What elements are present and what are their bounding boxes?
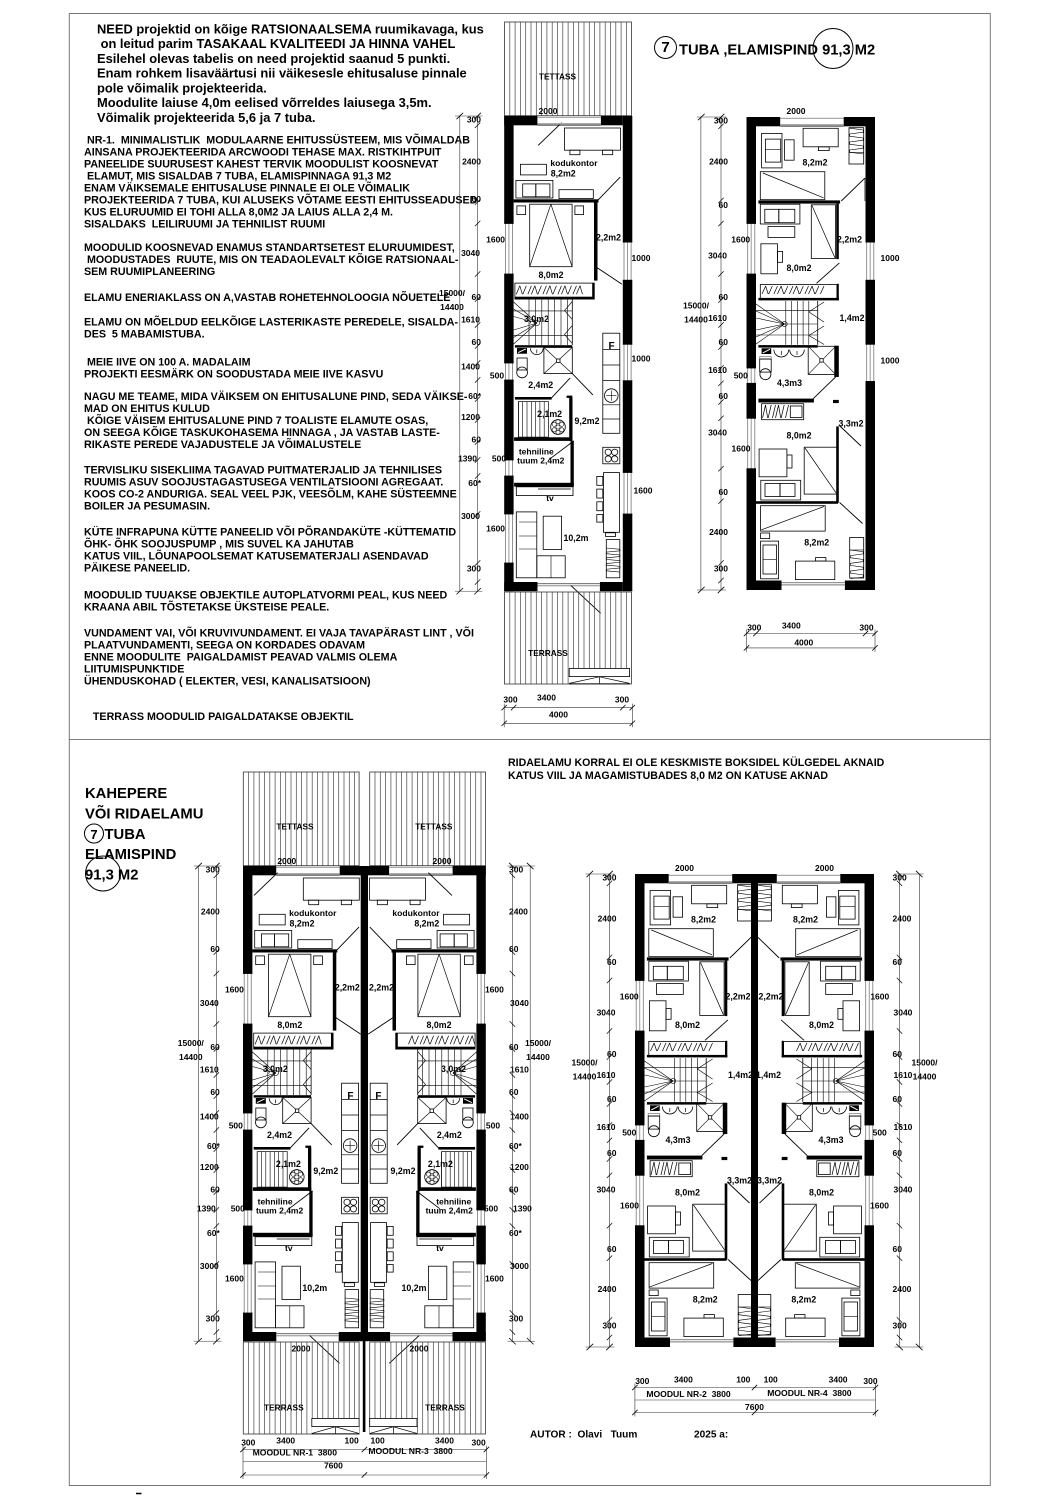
svg-text:KUS ELURUUMID EI TOHI ALLA 8,0: KUS ELURUUMID EI TOHI ALLA 8,0M2 JA LAIU… bbox=[84, 206, 393, 218]
svg-text:60*: 60* bbox=[468, 478, 481, 488]
svg-text:DES 5 MABAMISTUBA.: DES 5 MABAMISTUBA. bbox=[84, 328, 205, 340]
svg-text:1,4m2: 1,4m2 bbox=[728, 1070, 753, 1080]
svg-text:500: 500 bbox=[492, 454, 506, 464]
svg-text:AUTOR : Olavi Tuum: AUTOR : Olavi Tuum bbox=[530, 1429, 637, 1440]
svg-text:KOOS CO-2 ANDURIGA. SEAL VEEL: KOOS CO-2 ANDURIGA. SEAL VEEL PJK, VEESÕ… bbox=[84, 487, 457, 500]
svg-text:2400: 2400 bbox=[709, 527, 728, 537]
svg-text:300: 300 bbox=[859, 622, 873, 632]
svg-text:3,0m2: 3,0m2 bbox=[263, 1064, 288, 1074]
svg-text:4,3m3: 4,3m3 bbox=[819, 1135, 844, 1145]
svg-text:8,2m2: 8,2m2 bbox=[290, 918, 315, 928]
svg-text:2,2m2: 2,2m2 bbox=[335, 983, 360, 993]
svg-text:1600: 1600 bbox=[225, 1273, 244, 1283]
svg-text:2400: 2400 bbox=[598, 913, 617, 923]
svg-text:2000: 2000 bbox=[675, 863, 694, 873]
svg-text:3040: 3040 bbox=[894, 1185, 913, 1195]
svg-text:8,2m2: 8,2m2 bbox=[793, 914, 818, 924]
svg-text:2000: 2000 bbox=[787, 106, 806, 116]
svg-text:MOODUSTADES RUUTE, MIS ON TEA: MOODUSTADES RUUTE, MIS ON TEADAOLEVALT K… bbox=[84, 253, 459, 266]
svg-text:PROJEKTEERIDA 7 TUBA, KUI ALUS: PROJEKTEERIDA 7 TUBA, KUI ALUSEKS VÕTAME… bbox=[84, 193, 478, 206]
svg-text:300: 300 bbox=[635, 1376, 649, 1386]
svg-text:2025 a:: 2025 a: bbox=[694, 1429, 728, 1440]
svg-text:100: 100 bbox=[371, 1435, 385, 1445]
svg-text:KAHEPERE: KAHEPERE bbox=[85, 786, 167, 802]
svg-text:LIITUMISPUNKTIDE: LIITUMISPUNKTIDE bbox=[84, 663, 184, 675]
svg-text:MOODUL NR-1 3800: MOODUL NR-1 3800 bbox=[253, 1448, 338, 1458]
svg-text:3040: 3040 bbox=[708, 428, 727, 438]
svg-text:3400: 3400 bbox=[782, 621, 801, 631]
svg-text:F: F bbox=[609, 341, 615, 352]
svg-text:2,1m2: 2,1m2 bbox=[428, 1159, 453, 1169]
svg-text:F: F bbox=[347, 1091, 353, 1102]
svg-text:300: 300 bbox=[863, 1376, 877, 1386]
svg-text:60: 60 bbox=[893, 1049, 903, 1059]
svg-text:1390: 1390 bbox=[197, 1204, 216, 1214]
svg-text:kodukontor: kodukontor bbox=[550, 158, 598, 168]
svg-text:500: 500 bbox=[490, 370, 504, 380]
svg-text:PLAATVUNDAMENTI, SEEGA ON KORD: PLAATVUNDAMENTI, SEEGA ON KORDADES ODAVA… bbox=[84, 639, 365, 651]
svg-text:MOODUL NR-2 3800: MOODUL NR-2 3800 bbox=[646, 1389, 731, 1399]
svg-text:100: 100 bbox=[736, 1375, 750, 1385]
svg-text:8,2m2: 8,2m2 bbox=[803, 157, 828, 167]
svg-text:Moodulite laiuse 4,0m eelised: Moodulite laiuse 4,0m eelised võrreldes … bbox=[97, 95, 432, 110]
svg-text:9,2m2: 9,2m2 bbox=[391, 1166, 416, 1176]
svg-text:Võimalik projekteerida 5,6 ja: Võimalik projekteerida 5,6 ja 7 tuba. bbox=[97, 110, 316, 125]
svg-text:tv: tv bbox=[546, 493, 554, 503]
svg-text:3,0m2: 3,0m2 bbox=[441, 1064, 466, 1074]
svg-text:15000/: 15000/ bbox=[178, 1038, 205, 1048]
svg-text:1600: 1600 bbox=[486, 235, 505, 245]
svg-text:1600: 1600 bbox=[225, 985, 244, 995]
svg-text:60*: 60* bbox=[509, 1141, 522, 1151]
svg-text:2000: 2000 bbox=[277, 856, 296, 866]
svg-text:2400: 2400 bbox=[201, 906, 220, 916]
svg-text:1000: 1000 bbox=[632, 354, 651, 364]
svg-text:8,0m2: 8,0m2 bbox=[675, 1188, 700, 1198]
svg-text:3,3m2: 3,3m2 bbox=[839, 418, 864, 428]
svg-text:4,3m3: 4,3m3 bbox=[777, 378, 802, 388]
svg-text:KÜTE INFRAPUNA KÜTTE PANEELID: KÜTE INFRAPUNA KÜTTE PANEELID VÕI PÕRAND… bbox=[84, 526, 456, 539]
svg-text:3040: 3040 bbox=[708, 250, 727, 260]
svg-text:KÕIGE VÄISEM EHITUSALUNE PIND: KÕIGE VÄISEM EHITUSALUNE PIND 7 TOALISTE… bbox=[84, 414, 428, 427]
svg-text:ÜHENDUSKOHAD ( ELEKTER, VESI,: ÜHENDUSKOHAD ( ELEKTER, VESI, KANALISATS… bbox=[84, 674, 371, 687]
svg-text:60: 60 bbox=[607, 1244, 617, 1254]
svg-text:TERRASS MOODULID PAIGALDATAKSE: TERRASS MOODULID PAIGALDATAKSE OBJEKTIL bbox=[84, 711, 354, 723]
svg-text:60*: 60* bbox=[207, 1228, 220, 1238]
svg-text:60: 60 bbox=[472, 194, 482, 204]
svg-text:MOODUL NR-4 3800: MOODUL NR-4 3800 bbox=[767, 1388, 852, 1398]
svg-text:2,1m2: 2,1m2 bbox=[276, 1159, 301, 1169]
svg-text:2,4m2: 2,4m2 bbox=[267, 1130, 292, 1140]
svg-text:4,3m3: 4,3m3 bbox=[666, 1135, 691, 1145]
svg-text:1600: 1600 bbox=[485, 1273, 504, 1283]
svg-text:SISALDAKS LEILIRUUMI JA TEHNI: SISALDAKS LEILIRUUMI JA TEHNILIST RUUMI bbox=[84, 218, 325, 230]
svg-text:60: 60 bbox=[607, 1049, 617, 1059]
svg-text:60: 60 bbox=[509, 944, 519, 954]
svg-text:300: 300 bbox=[503, 695, 517, 705]
svg-text:ELAMU ENERIAKLASS ON A,VASTAB: ELAMU ENERIAKLASS ON A,VASTAB ROHETEHNOL… bbox=[84, 291, 450, 304]
svg-text:3400: 3400 bbox=[435, 1435, 454, 1445]
svg-text:2,4m2: 2,4m2 bbox=[437, 1130, 462, 1140]
svg-text:8,2m2: 8,2m2 bbox=[414, 918, 439, 928]
svg-text:SEM RUUMIPLANEERING: SEM RUUMIPLANEERING bbox=[84, 266, 215, 278]
svg-text:1610: 1610 bbox=[708, 313, 727, 323]
svg-text:3400: 3400 bbox=[829, 1375, 848, 1385]
svg-text:1390: 1390 bbox=[513, 1204, 532, 1214]
svg-text:2400: 2400 bbox=[709, 156, 728, 166]
svg-text:1390: 1390 bbox=[458, 454, 477, 464]
svg-text:BOILER JA PESUMASIN.: BOILER JA PESUMASIN. bbox=[84, 500, 210, 512]
svg-text:3,3m2: 3,3m2 bbox=[727, 1175, 752, 1185]
svg-text:2400: 2400 bbox=[598, 1284, 617, 1294]
svg-text:8,0m2: 8,0m2 bbox=[675, 1020, 700, 1030]
svg-text:300: 300 bbox=[206, 1313, 220, 1323]
svg-text:1,4m2: 1,4m2 bbox=[756, 1070, 781, 1080]
svg-text:3400: 3400 bbox=[674, 1375, 693, 1385]
svg-text:500: 500 bbox=[873, 1127, 887, 1137]
svg-text:60: 60 bbox=[893, 1244, 903, 1254]
svg-text:Enam rohkem lisaväärtusi nii v: Enam rohkem lisaväärtusi nii väikesesle … bbox=[97, 66, 467, 81]
svg-text:MEIE IIVE ON 100 A. MADALAIM: MEIE IIVE ON 100 A. MADALAIM bbox=[84, 356, 251, 368]
svg-text:TUBA: TUBA bbox=[105, 827, 146, 843]
svg-text:2400: 2400 bbox=[893, 1284, 912, 1294]
svg-text:ENNE MOODULITE PAIGALDAMIST P: ENNE MOODULITE PAIGALDAMIST PEAVAD VALMI… bbox=[84, 651, 398, 663]
svg-text:1600: 1600 bbox=[486, 523, 505, 533]
svg-text:1610: 1610 bbox=[894, 1122, 913, 1132]
svg-text:TETTASS: TETTASS bbox=[415, 822, 453, 832]
svg-text:NEED projektid on kõige RATSIO: NEED projektid on kõige RATSIONAALSEMA r… bbox=[97, 22, 484, 37]
svg-text:1000: 1000 bbox=[881, 253, 900, 263]
svg-text:TUBA ,ELAMISPIND 91,3 M2: TUBA ,ELAMISPIND 91,3 M2 bbox=[679, 43, 875, 59]
svg-text:14400: 14400 bbox=[913, 1072, 937, 1082]
svg-text:TERRASS: TERRASS bbox=[528, 648, 568, 658]
svg-text:300: 300 bbox=[467, 563, 481, 573]
svg-text:8,0m2: 8,0m2 bbox=[427, 1020, 452, 1030]
svg-text:1000: 1000 bbox=[632, 253, 651, 263]
svg-text:2,1m2: 2,1m2 bbox=[537, 409, 562, 419]
svg-text:500: 500 bbox=[486, 1120, 500, 1130]
svg-text:RIKASTE PEREDE VAJADUSTELE JA: RIKASTE PEREDE VAJADUSTELE JA VÕIMALUSTE… bbox=[84, 438, 361, 451]
svg-text:300: 300 bbox=[747, 622, 761, 632]
svg-text:2,4m2: 2,4m2 bbox=[528, 380, 553, 390]
svg-text:500: 500 bbox=[484, 1204, 498, 1214]
svg-text:2,2m2: 2,2m2 bbox=[837, 235, 862, 245]
svg-text:15000/: 15000/ bbox=[525, 1038, 552, 1048]
svg-text:3400: 3400 bbox=[537, 693, 556, 703]
svg-text:60: 60 bbox=[509, 1087, 519, 1097]
svg-text:3,3m2: 3,3m2 bbox=[757, 1175, 782, 1185]
svg-text:2,2m2: 2,2m2 bbox=[759, 992, 784, 1002]
svg-text:300: 300 bbox=[509, 1313, 523, 1323]
svg-text:3040: 3040 bbox=[894, 1007, 913, 1017]
svg-text:3400: 3400 bbox=[276, 1435, 295, 1445]
svg-text:15000/: 15000/ bbox=[572, 1058, 599, 1068]
svg-text:on leitud parim TASAKAAL KVALI: on leitud parim TASAKAAL KVALITEEDI JA H… bbox=[97, 36, 455, 51]
svg-text:TETTASS: TETTASS bbox=[276, 822, 314, 832]
svg-text:10,2m: 10,2m bbox=[564, 533, 589, 543]
svg-text:8,0m2: 8,0m2 bbox=[809, 1188, 834, 1198]
svg-text:PANEELIDE SUURUSEST KAHEST TER: PANEELIDE SUURUSEST KAHEST TERVIK MOODUL… bbox=[84, 158, 439, 170]
svg-text:4000: 4000 bbox=[794, 637, 813, 647]
svg-text:ELAMISPIND: ELAMISPIND bbox=[85, 847, 177, 863]
svg-text:2000: 2000 bbox=[433, 856, 452, 866]
svg-text:tuum 2,4m2: tuum 2,4m2 bbox=[256, 1206, 304, 1216]
svg-text:ELAMU ON MÕELDUD EELKÕIGE LAST: ELAMU ON MÕELDUD EELKÕIGE LASTERIKASTE P… bbox=[84, 315, 459, 328]
svg-text:100: 100 bbox=[764, 1375, 778, 1385]
svg-text:8,0m2: 8,0m2 bbox=[787, 263, 812, 273]
svg-text:NR-1. MINIMALISTLIK MODULAAR: NR-1. MINIMALISTLIK MODULAARNE EHITUSSÜS… bbox=[84, 133, 470, 146]
svg-text:MAD ON EHITUS KULUD: MAD ON EHITUS KULUD bbox=[84, 403, 210, 415]
svg-text:9,2m2: 9,2m2 bbox=[575, 416, 600, 426]
svg-text:14400: 14400 bbox=[684, 315, 708, 325]
svg-text:60: 60 bbox=[472, 337, 482, 347]
svg-text:8,0m2: 8,0m2 bbox=[277, 1020, 302, 1030]
svg-text:60: 60 bbox=[719, 292, 729, 302]
svg-text:8,2m2: 8,2m2 bbox=[691, 914, 716, 924]
svg-text:60: 60 bbox=[893, 1094, 903, 1104]
svg-text:60*: 60* bbox=[207, 1141, 220, 1151]
svg-text:15000/: 15000/ bbox=[912, 1058, 939, 1068]
svg-text:KATUS VIIL, LÕUNAPOOLSEMAT KAT: KATUS VIIL, LÕUNAPOOLSEMAT KATUSEMATERJA… bbox=[84, 550, 429, 563]
svg-text:kodukontor: kodukontor bbox=[392, 908, 440, 918]
svg-text:1610: 1610 bbox=[597, 1122, 616, 1132]
svg-text:1610: 1610 bbox=[708, 365, 727, 375]
svg-text:60: 60 bbox=[719, 337, 729, 347]
svg-text:1600: 1600 bbox=[620, 1200, 639, 1210]
svg-text:ELAMUT, MIS SISALDAB 7 TUBA, E: ELAMUT, MIS SISALDAB 7 TUBA, ELAMISPINNA… bbox=[84, 170, 391, 182]
svg-text:MOODULID TUUAKSE OBJEKTILE AUT: MOODULID TUUAKSE OBJEKTILE AUTOPLATVORMI… bbox=[84, 590, 447, 602]
svg-text:8,0m2: 8,0m2 bbox=[809, 1020, 834, 1030]
svg-text:8,0m2: 8,0m2 bbox=[539, 270, 564, 280]
svg-text:60: 60 bbox=[719, 487, 729, 497]
svg-text:TERRASS: TERRASS bbox=[264, 1403, 304, 1413]
svg-text:300: 300 bbox=[241, 1438, 255, 1448]
svg-text:10,2m: 10,2m bbox=[402, 1283, 427, 1293]
svg-text:15000/: 15000/ bbox=[683, 301, 710, 311]
svg-text:8,2m2: 8,2m2 bbox=[693, 1295, 718, 1305]
svg-text:1600: 1600 bbox=[731, 235, 750, 245]
svg-text:ÕHK- ÕHK SOOJUSPUMP , MIS SUVE: ÕHK- ÕHK SOOJUSPUMP , MIS SUVEL KA JAHUT… bbox=[84, 538, 354, 551]
svg-text:RUUMIS ASUV SOOJUSTAGASTUSEGA: RUUMIS ASUV SOOJUSTAGASTUSEGA VENTILATSI… bbox=[84, 476, 443, 488]
svg-text:1,4m2: 1,4m2 bbox=[840, 313, 865, 323]
svg-text:tv: tv bbox=[285, 1243, 293, 1253]
svg-text:500: 500 bbox=[622, 1127, 636, 1137]
svg-text:2400: 2400 bbox=[462, 156, 481, 166]
svg-text:3040: 3040 bbox=[510, 998, 529, 1008]
svg-text:3040: 3040 bbox=[597, 1185, 616, 1195]
svg-text:2000: 2000 bbox=[815, 863, 834, 873]
svg-text:tuum 2,4m2: tuum 2,4m2 bbox=[426, 1206, 474, 1216]
svg-text:VUNDAMENT VAI, VÕI KRUVIVUNDAM: VUNDAMENT VAI, VÕI KRUVIVUNDAMENT. EI VA… bbox=[84, 626, 474, 639]
svg-text:kodukontor: kodukontor bbox=[289, 908, 337, 918]
svg-text:1600: 1600 bbox=[870, 1200, 889, 1210]
svg-text:TERRASS: TERRASS bbox=[425, 1403, 465, 1413]
svg-text:2,2m2: 2,2m2 bbox=[369, 983, 394, 993]
svg-text:4000: 4000 bbox=[549, 710, 568, 720]
svg-text:60: 60 bbox=[210, 944, 220, 954]
svg-text:F: F bbox=[375, 1091, 381, 1102]
svg-text:1610: 1610 bbox=[510, 1065, 529, 1075]
svg-text:500: 500 bbox=[231, 1204, 245, 1214]
svg-text:14400: 14400 bbox=[440, 302, 464, 312]
svg-text:14400: 14400 bbox=[179, 1052, 203, 1062]
svg-text:tuum 2,4m2: tuum 2,4m2 bbox=[517, 456, 565, 466]
svg-text:KATUS VIIL JA MAGAMISTUBADES 8: KATUS VIIL JA MAGAMISTUBADES 8,0 M2 ON K… bbox=[508, 770, 828, 782]
svg-text:2,2m2: 2,2m2 bbox=[726, 992, 751, 1002]
svg-text:ON SEEGA KÕIGE TASKUKOHASEMA H: ON SEEGA KÕIGE TASKUKOHASEMA HINNAGA , J… bbox=[84, 426, 440, 439]
svg-text:1600: 1600 bbox=[634, 485, 653, 495]
svg-text:2000: 2000 bbox=[539, 106, 558, 116]
svg-text:60*: 60* bbox=[468, 391, 481, 401]
svg-text:9,2m2: 9,2m2 bbox=[313, 1166, 338, 1176]
svg-text:VÕI RIDAELAMU: VÕI RIDAELAMU bbox=[85, 804, 203, 822]
svg-text:pole võimalik projekteerida.: pole võimalik projekteerida. bbox=[97, 80, 267, 95]
svg-text:60: 60 bbox=[210, 1087, 220, 1097]
svg-text:Esilehel olevas tabelis on nee: Esilehel olevas tabelis on need projekti… bbox=[97, 51, 450, 66]
svg-text:7: 7 bbox=[661, 39, 669, 56]
svg-text:3000: 3000 bbox=[510, 1261, 529, 1271]
svg-text:15000/: 15000/ bbox=[439, 288, 466, 298]
svg-text:NAGU ME TEAME, MIDA VÄIKSEM ON: NAGU ME TEAME, MIDA VÄIKSEM ON EHITUSALU… bbox=[84, 390, 468, 403]
svg-text:10,2m: 10,2m bbox=[302, 1283, 327, 1293]
svg-text:PÄIKESE PANEELID.: PÄIKESE PANEELID. bbox=[84, 562, 190, 575]
svg-text:TETTASS: TETTASS bbox=[539, 72, 577, 82]
svg-text:300: 300 bbox=[615, 695, 629, 705]
svg-text:2000: 2000 bbox=[410, 1343, 429, 1353]
svg-text:7: 7 bbox=[90, 827, 97, 842]
svg-text:2,2m2: 2,2m2 bbox=[596, 233, 621, 243]
svg-text:14400: 14400 bbox=[573, 1072, 597, 1082]
svg-text:tv: tv bbox=[436, 1243, 444, 1253]
svg-text:TERVISLIKU SISEKLIIMA TAGAVAD: TERVISLIKU SISEKLIIMA TAGAVAD PUITMATERJ… bbox=[84, 464, 442, 476]
svg-text:2000: 2000 bbox=[292, 1343, 311, 1353]
svg-text:RIDAELAMU KORRAL EI OLE KESKMI: RIDAELAMU KORRAL EI OLE KESKMISTE BOKSID… bbox=[508, 756, 885, 769]
svg-text:1600: 1600 bbox=[485, 985, 504, 995]
svg-text:500: 500 bbox=[229, 1120, 243, 1130]
svg-text:2400: 2400 bbox=[893, 913, 912, 923]
svg-text:1000: 1000 bbox=[881, 355, 900, 365]
svg-text:14400: 14400 bbox=[526, 1052, 550, 1062]
svg-text:2400: 2400 bbox=[509, 906, 528, 916]
svg-text:PROJEKTI EESMÄRK ON SOODUSTADA: PROJEKTI EESMÄRK ON SOODUSTADA MEIE IIVE… bbox=[84, 367, 384, 380]
svg-text:1600: 1600 bbox=[870, 992, 889, 1002]
svg-text:500: 500 bbox=[734, 370, 748, 380]
svg-text:60*: 60* bbox=[509, 1228, 522, 1238]
svg-text:MOODUL NR-3 3800: MOODUL NR-3 3800 bbox=[368, 1446, 453, 1456]
svg-text:1600: 1600 bbox=[732, 443, 751, 453]
svg-text:60: 60 bbox=[607, 1094, 617, 1104]
svg-text:3,0m2: 3,0m2 bbox=[524, 314, 549, 324]
svg-text:KRAANA ABIL TÕSTETAKSE ÜKSTEIS: KRAANA ABIL TÕSTETAKSE ÜKSTEISE PEALE. bbox=[84, 601, 329, 614]
svg-text:8,0m2: 8,0m2 bbox=[787, 431, 812, 441]
svg-text:1610: 1610 bbox=[894, 1070, 913, 1080]
svg-text:MOODULID KOOSNEVAD ENAMUS STAN: MOODULID KOOSNEVAD ENAMUS STANDARTSETEST… bbox=[84, 242, 455, 254]
svg-text:91,3 M2: 91,3 M2 bbox=[85, 868, 138, 884]
svg-text:8,2m2: 8,2m2 bbox=[804, 538, 829, 548]
svg-text:ENAM VÄIKSEMALE EHITUSALUSE PI: ENAM VÄIKSEMALE EHITUSALUSE PINNALE EI O… bbox=[84, 181, 410, 194]
svg-text:7600: 7600 bbox=[324, 1461, 343, 1471]
svg-text:8,2m2: 8,2m2 bbox=[791, 1295, 816, 1305]
svg-text:7600: 7600 bbox=[745, 1402, 764, 1412]
svg-text:AINSANA PROJEKTEERIDA ARCWOODI: AINSANA PROJEKTEERIDA ARCWOODI TEHASE MA… bbox=[84, 146, 442, 158]
svg-text:100: 100 bbox=[345, 1435, 359, 1445]
svg-text:1610: 1610 bbox=[597, 1070, 616, 1080]
svg-text:3040: 3040 bbox=[597, 1007, 616, 1017]
svg-text:8,2m2: 8,2m2 bbox=[551, 168, 576, 178]
svg-text:1600: 1600 bbox=[620, 992, 639, 1002]
svg-text:300: 300 bbox=[472, 1438, 486, 1448]
